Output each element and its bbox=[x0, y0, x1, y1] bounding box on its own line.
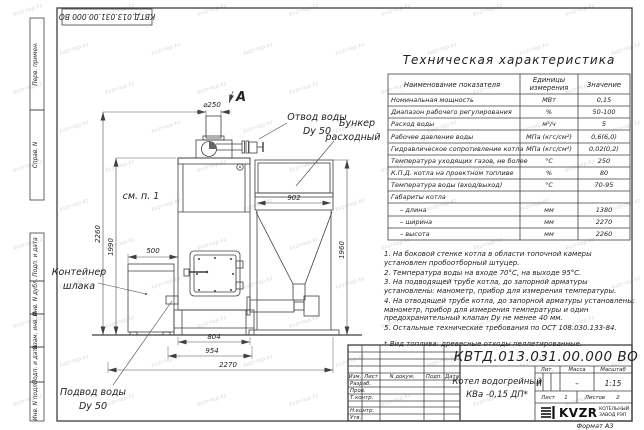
row-value: 0,15 bbox=[597, 96, 611, 104]
row-value: 250 bbox=[598, 157, 610, 165]
row-name: Номинальная мощность bbox=[391, 96, 474, 104]
row-name: Гидравлическое сопротивление котла bbox=[391, 145, 523, 153]
callout-container2: шлака bbox=[63, 281, 95, 292]
row-value: 5 bbox=[602, 120, 606, 128]
dim-bunker-height: 1960 bbox=[338, 241, 346, 259]
row-name: – высота bbox=[400, 230, 430, 238]
title-block: Изм. Лист N докум. Подп. Дата Разраб. Пр… bbox=[348, 345, 638, 421]
watermark-text: kvzr-rep.kz bbox=[243, 120, 274, 135]
row-unit: мм bbox=[544, 230, 554, 238]
tb-col-doc: N докум. bbox=[390, 374, 415, 380]
company-name-line1: КОТЕЛЬНЫЙ bbox=[599, 405, 629, 412]
format-label: Формат А3 bbox=[576, 422, 613, 430]
dim-boiler-height: 2260 bbox=[94, 225, 102, 243]
watermark-text: kvzr-rep.kz bbox=[197, 3, 228, 18]
side-label: Инв. N подл. bbox=[33, 382, 39, 420]
tb-col-list: Лист bbox=[363, 374, 379, 380]
watermark-text: kvzr-rep.kz bbox=[335, 198, 366, 213]
watermark-text: kvzr-rep.kz bbox=[611, 42, 642, 57]
row-name: Габариты котла bbox=[391, 193, 446, 201]
dim-bunker-width: 902 bbox=[287, 194, 301, 202]
tb-sheets-value: 2 bbox=[616, 395, 620, 401]
row-name: Температура воды (вход/выход) bbox=[391, 181, 502, 189]
watermark-text: kvzr-rep.kz bbox=[197, 237, 228, 252]
feeder-motor bbox=[304, 296, 319, 316]
row-unit: мм bbox=[544, 206, 554, 214]
row-name: – длина bbox=[400, 206, 426, 214]
watermark-text: kvzr-rep.kz bbox=[289, 159, 320, 174]
dim-total-width: 2270 bbox=[219, 361, 237, 369]
watermark-text: kvzr-rep.kz bbox=[197, 81, 228, 96]
row-unit: °С bbox=[545, 181, 553, 189]
side-label: Подп. и дата bbox=[33, 344, 39, 384]
tb-row-approved: Утв. bbox=[350, 415, 361, 421]
row-unit: % bbox=[546, 108, 552, 116]
row-unit: МВт bbox=[542, 96, 556, 104]
watermark-text: kvzr-rep.kz bbox=[565, 3, 596, 18]
row-name: Температура уходящих газов, не более bbox=[391, 157, 528, 165]
company-logo-icon bbox=[541, 406, 554, 419]
watermark-text: kvzr-rep.kz bbox=[381, 393, 412, 408]
side-label: Взам. инв. N bbox=[33, 311, 39, 349]
row-unit: м³/ч bbox=[542, 120, 556, 128]
watermark-text: kvzr-rep.kz bbox=[473, 3, 504, 18]
boiler-base bbox=[166, 296, 254, 335]
watermark-text: kvzr-rep.kz bbox=[289, 237, 320, 252]
side-label: Инв. N дубл. bbox=[33, 278, 39, 316]
callout-see-note: см. п. 1 bbox=[123, 191, 160, 202]
row-unit: °С bbox=[545, 157, 553, 165]
fuel-note: * Вид топлива: древесные отходы пеллетир… bbox=[384, 340, 636, 349]
callout-bunker2: расходный bbox=[325, 132, 381, 143]
tb-product-name2: КВа -0,15 ДП* bbox=[466, 390, 528, 400]
row-name: Рабочее давление воды bbox=[391, 133, 473, 141]
top-doc-number: КВТД.013.031.00.000 ВО bbox=[59, 12, 155, 21]
slag-container bbox=[128, 264, 174, 335]
dim-container-width: 500 bbox=[146, 247, 160, 255]
company-abbr: KVZR bbox=[559, 406, 598, 420]
watermark-text: kvzr-rep.kz bbox=[13, 3, 44, 18]
water-inlet-fitting bbox=[166, 296, 178, 304]
watermark-text: kvzr-rep.kz bbox=[289, 393, 320, 408]
row-name: Диапазон рабочего регулирования bbox=[390, 108, 512, 116]
callout-inlet-dy: Dy 50 bbox=[79, 401, 107, 412]
tb-mass-header: Масса bbox=[568, 367, 585, 373]
watermark-text: kvzr-rep.kz bbox=[151, 120, 182, 135]
col-header-value: Значение bbox=[587, 81, 621, 89]
tb-lit-value: И bbox=[536, 379, 542, 388]
tb-row-tcontrol: Т.контр. bbox=[350, 395, 373, 401]
tb-sheet-value: 1 bbox=[564, 395, 567, 401]
tb-mass-value: – bbox=[575, 379, 579, 388]
row-value: 2270 bbox=[596, 218, 613, 226]
note: 3. На подводящей трубе котла, до запорно… bbox=[384, 278, 636, 296]
watermark-text: kvzr-rep.kz bbox=[197, 393, 228, 408]
row-value: 50-100 bbox=[592, 108, 615, 116]
tb-col-izm: Изм. bbox=[349, 374, 362, 380]
watermark-text: kvzr-rep.kz bbox=[611, 198, 642, 213]
watermark-text: kvzr-rep.kz bbox=[197, 159, 228, 174]
side-label: Справ. N bbox=[33, 141, 39, 168]
watermark-text: kvzr-rep.kz bbox=[289, 315, 320, 330]
watermark-text: kvzr-rep.kz bbox=[243, 198, 274, 213]
watermark-text: kvzr-rep.kz bbox=[243, 276, 274, 291]
tb-row-developed: Разраб. bbox=[350, 381, 371, 387]
tb-product-name: Котел водогрейный bbox=[452, 377, 542, 387]
row-value: 70-95 bbox=[595, 181, 614, 189]
watermark-text: kvzr-rep.kz bbox=[289, 3, 320, 18]
dim-front-width: 954 bbox=[205, 347, 218, 355]
side-label: Перв. примен. bbox=[33, 42, 39, 86]
row-value: 80 bbox=[600, 169, 608, 177]
watermark-text: kvzr-rep.kz bbox=[381, 3, 412, 18]
col-header-units: Единицы bbox=[533, 76, 566, 84]
row-value: 2260 bbox=[596, 230, 613, 238]
side-strip: Перв. примен. Справ. N Подп. и дата Инв.… bbox=[30, 18, 44, 421]
screw-feeder bbox=[247, 296, 319, 316]
watermark-text: kvzr-rep.kz bbox=[335, 276, 366, 291]
watermark-text: kvzr-rep.kz bbox=[151, 42, 182, 57]
watermark-text: kvzr-rep.kz bbox=[335, 42, 366, 57]
row-value: 1380 bbox=[596, 206, 613, 214]
watermark-text: kvzr-rep.kz bbox=[59, 198, 90, 213]
tb-sheets-label: Листов bbox=[584, 395, 605, 401]
side-label: Подп. и дата bbox=[33, 237, 39, 277]
watermark-text: kvzr-rep.kz bbox=[105, 315, 136, 330]
row-unit: % bbox=[546, 169, 552, 177]
watermark-text: kvzr-rep.kz bbox=[105, 159, 136, 174]
col-header-name: Наименование показателя bbox=[404, 81, 500, 89]
watermark-text: kvzr-rep.kz bbox=[59, 120, 90, 135]
dim-chimney-dia: ⌀250 bbox=[203, 101, 221, 109]
bunker-downspout bbox=[293, 284, 305, 300]
tb-lit-header: Лит. bbox=[540, 367, 553, 373]
watermark-text: kvzr-rep.kz bbox=[59, 354, 90, 369]
view-label: А bbox=[235, 90, 246, 105]
technical-notes: 1. На боковой стенке котла в области топ… bbox=[384, 250, 636, 350]
row-value: 0,6(6,0) bbox=[591, 133, 617, 141]
tb-doc-number: КВТД.013.031.00.000 ВО bbox=[454, 349, 638, 365]
row-unit: мм bbox=[544, 218, 554, 226]
boiler-body bbox=[178, 158, 250, 310]
row-unit: МПа (кгс/см²) bbox=[526, 133, 572, 141]
note: 2. Температура воды на входе 70°С, на вы… bbox=[384, 269, 636, 278]
note: 5. Остальные технические требования по О… bbox=[384, 324, 636, 333]
watermark-text: kvzr-rep.kz bbox=[289, 81, 320, 96]
note: 1. На боковой стенке котла в области топ… bbox=[384, 250, 636, 268]
tb-row-ncontrol: Н.контр. bbox=[350, 408, 374, 414]
dim-jacket-height: 1990 bbox=[107, 238, 115, 256]
tb-scale-value: 1:15 bbox=[605, 379, 622, 388]
col-header-units2: измерения bbox=[530, 84, 569, 92]
row-name: К.П.Д. котла на проектном топливе bbox=[391, 169, 514, 177]
tb-row-checked: Пров. bbox=[350, 388, 366, 394]
watermark-text: kvzr-rep.kz bbox=[151, 276, 182, 291]
tb-scale-header: Масштаб bbox=[600, 367, 626, 373]
tb-col-sign: Подп. bbox=[426, 374, 442, 380]
callout-inlet: Подвод воды bbox=[60, 387, 127, 398]
drawing-sheet: kvzr-rep.kzkvzr-rep.kzkvzr-rep.kzkvzr-re… bbox=[0, 0, 644, 430]
dim-base-width: 804 bbox=[207, 333, 220, 341]
spec-table: Техническая характеристика Наименование … bbox=[388, 53, 630, 240]
watermark-text: kvzr-rep.kz bbox=[565, 159, 596, 174]
watermark-text: kvzr-rep.kz bbox=[335, 354, 366, 369]
row-name: Расход воды bbox=[391, 120, 434, 128]
note: 4. На отводящей трубе котла, до запорной… bbox=[384, 297, 636, 323]
chimney bbox=[196, 116, 232, 158]
boiler-drawing bbox=[92, 116, 362, 335]
callout-bunker: Бункер bbox=[339, 118, 375, 129]
tb-sheet-label: Лист bbox=[540, 395, 556, 401]
callout-container: Контейнер bbox=[52, 267, 106, 278]
watermark-text: kvzr-rep.kz bbox=[105, 81, 136, 96]
drawing-canvas: kvzr-rep.kzkvzr-rep.kzkvzr-rep.kzkvzr-re… bbox=[0, 0, 644, 430]
row-name: – ширина bbox=[400, 218, 432, 226]
company-name-line2: ЗАВОД РЭП bbox=[599, 412, 626, 418]
watermark-text: kvzr-rep.kz bbox=[243, 42, 274, 57]
furnace-door bbox=[184, 251, 243, 296]
row-unit: МПа (кгс/см²) bbox=[526, 145, 572, 153]
watermark-text: kvzr-rep.kz bbox=[59, 42, 90, 57]
row-value: 0,02(0,2) bbox=[589, 145, 619, 153]
spec-table-title: Техническая характеристика bbox=[403, 53, 616, 67]
water-outlet-valve bbox=[216, 141, 263, 153]
